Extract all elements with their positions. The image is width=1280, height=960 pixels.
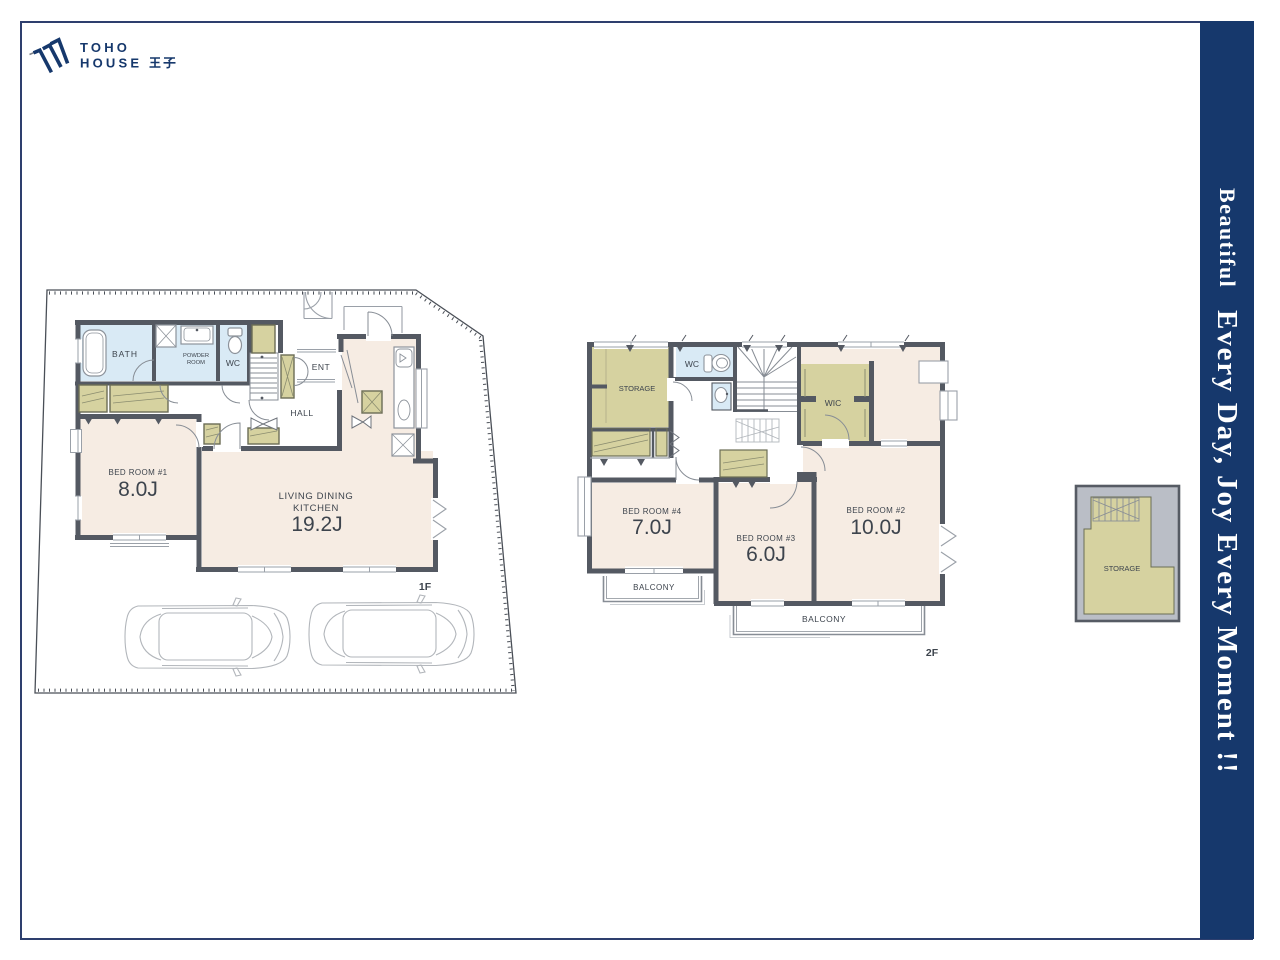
svg-text:BALCONY: BALCONY	[802, 614, 846, 624]
svg-text:STORAGE: STORAGE	[619, 384, 656, 393]
svg-text:BED ROOM #3: BED ROOM #3	[736, 534, 795, 543]
svg-text:BED ROOM #2: BED ROOM #2	[846, 506, 905, 515]
svg-text:POWDER: POWDER	[183, 353, 209, 359]
svg-text:WC: WC	[685, 359, 699, 369]
svg-text:7.0J: 7.0J	[632, 516, 672, 539]
svg-text:8.0J: 8.0J	[118, 478, 158, 501]
svg-text:2F: 2F	[926, 647, 939, 659]
svg-text:BED ROOM #4: BED ROOM #4	[622, 507, 681, 516]
svg-text:10.0J: 10.0J	[850, 516, 901, 539]
svg-text:ENT: ENT	[312, 362, 331, 372]
svg-text:19.2J: 19.2J	[291, 513, 342, 536]
svg-text:ROOM: ROOM	[187, 360, 205, 366]
svg-text:1F: 1F	[419, 581, 432, 593]
svg-text:LIVING DINING: LIVING DINING	[279, 491, 354, 502]
svg-text:WIC: WIC	[825, 398, 842, 408]
svg-text:6.0J: 6.0J	[746, 543, 786, 566]
svg-text:WC: WC	[226, 358, 240, 368]
svg-text:STORAGE: STORAGE	[1104, 564, 1141, 573]
svg-text:BALCONY: BALCONY	[633, 583, 675, 592]
svg-text:HALL: HALL	[290, 408, 313, 418]
svg-text:BATH: BATH	[112, 349, 138, 359]
svg-text:BED ROOM #1: BED ROOM #1	[108, 468, 167, 477]
